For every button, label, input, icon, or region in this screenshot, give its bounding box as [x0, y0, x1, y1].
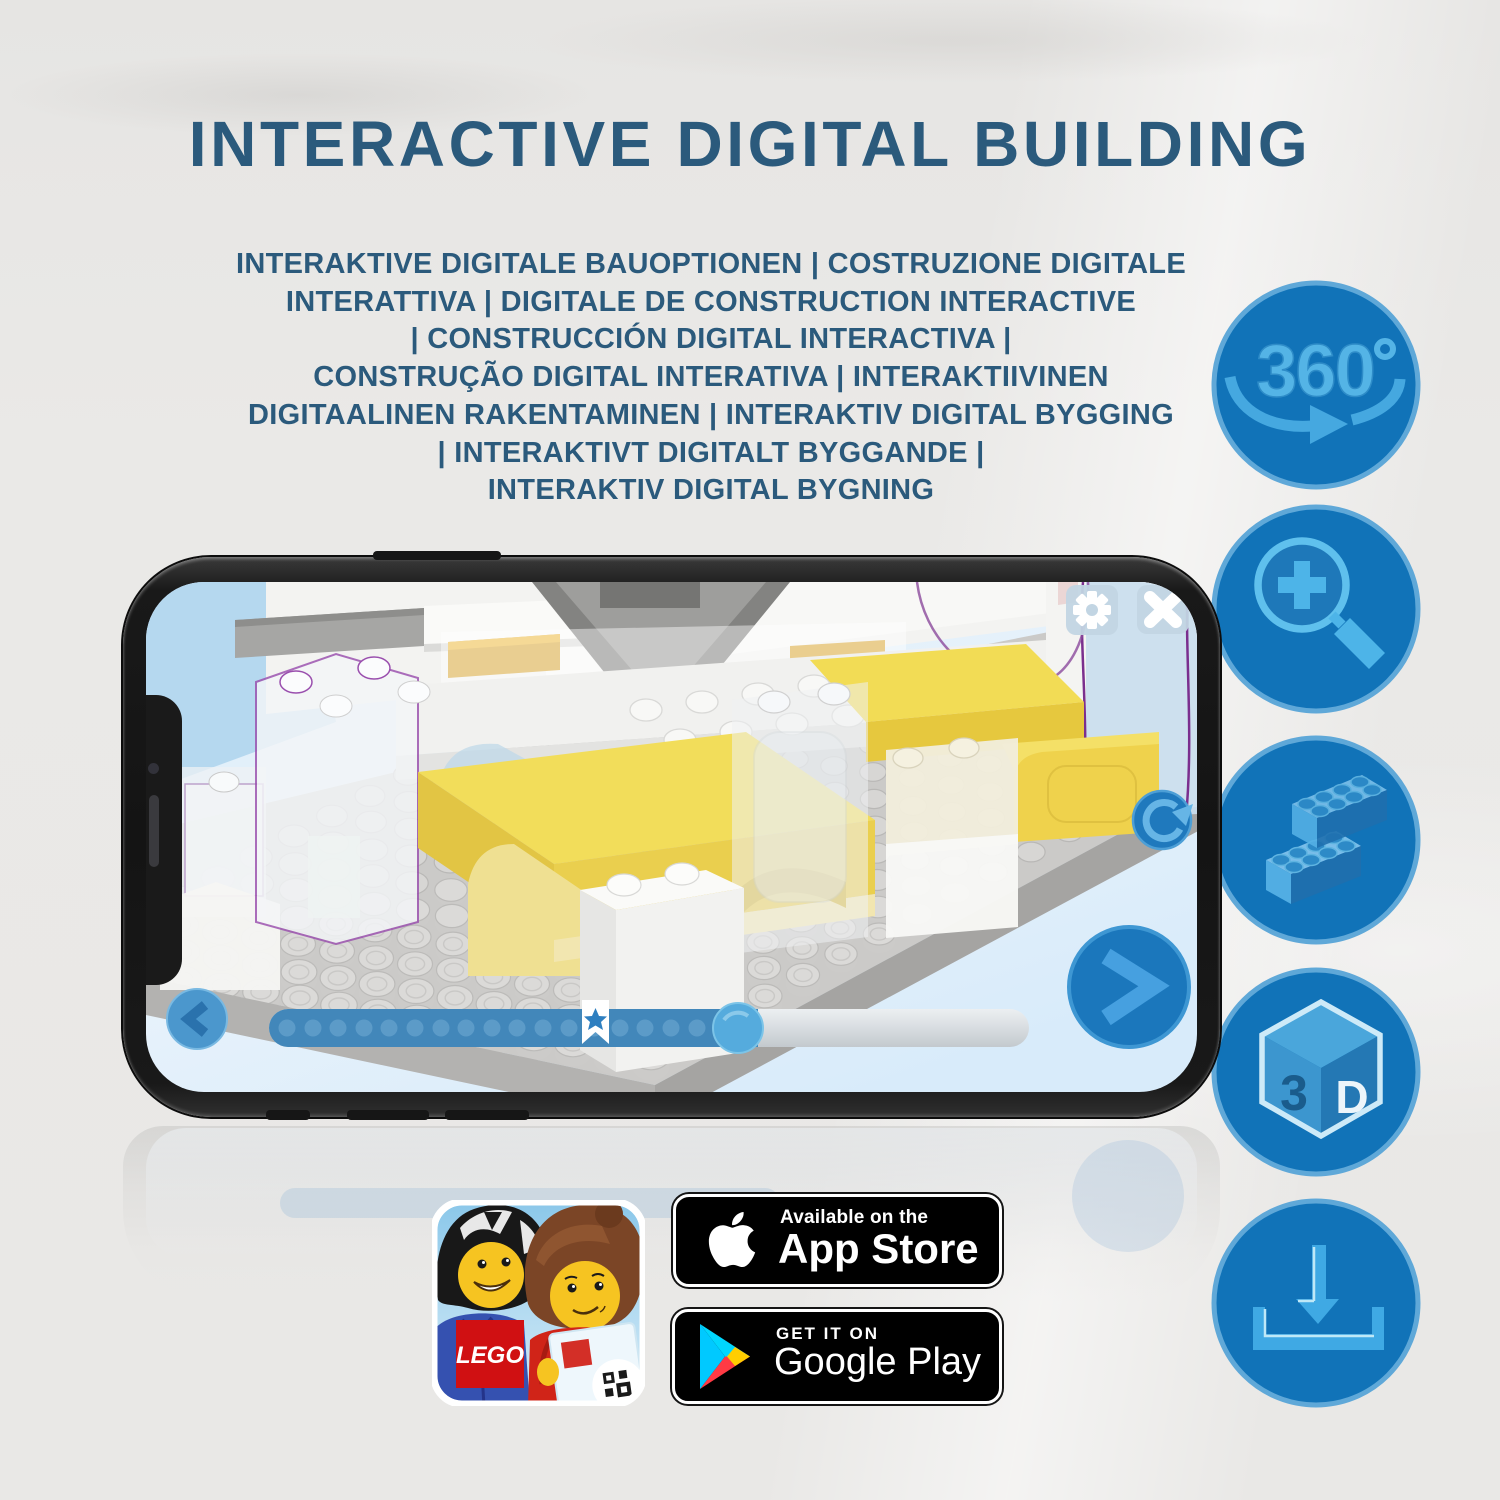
svg-text:D: D: [1335, 1071, 1368, 1123]
svg-text:360: 360: [1256, 329, 1373, 412]
svg-text:3: 3: [1280, 1065, 1308, 1121]
svg-text:LEGO: LEGO: [456, 1342, 524, 1369]
